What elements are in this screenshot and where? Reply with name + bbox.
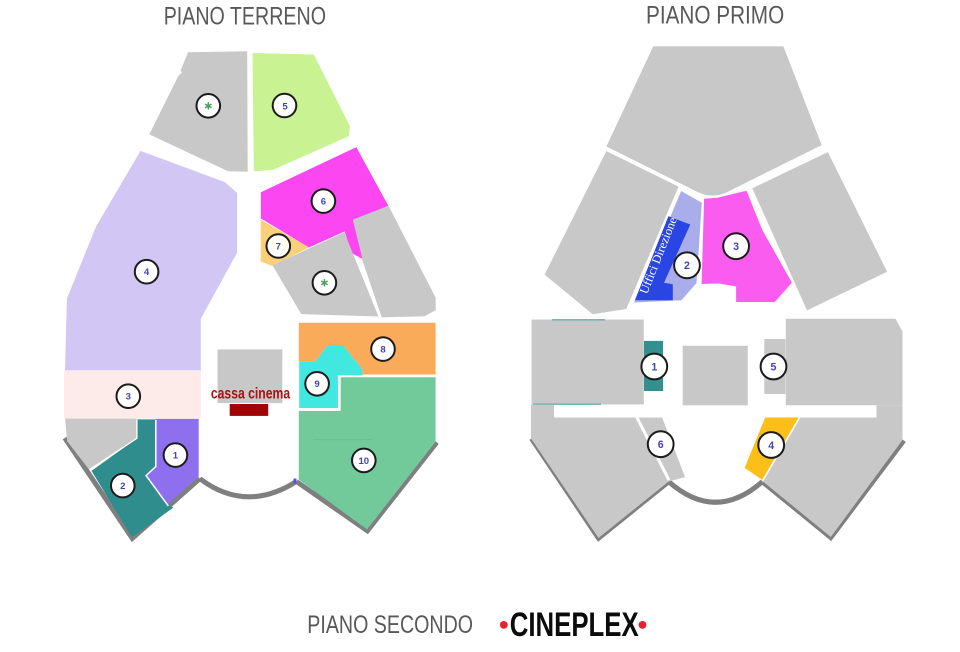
- svg-text:cassa cinema: cassa cinema: [211, 385, 290, 402]
- svg-text:3: 3: [733, 241, 739, 253]
- svg-text:10: 10: [358, 456, 369, 467]
- svg-text:1: 1: [651, 361, 657, 373]
- svg-text:5: 5: [282, 101, 288, 112]
- svg-text:5: 5: [771, 361, 777, 373]
- svg-text:CINEPLEX: CINEPLEX: [510, 606, 639, 644]
- svg-text:2: 2: [684, 260, 690, 272]
- svg-text:7: 7: [276, 241, 281, 252]
- svg-text:PIANO TERRENO: PIANO TERRENO: [164, 3, 326, 31]
- svg-text:8: 8: [380, 345, 386, 356]
- svg-text:2: 2: [120, 481, 125, 492]
- svg-text:4: 4: [144, 267, 150, 278]
- svg-text:9: 9: [314, 379, 319, 390]
- svg-text:6: 6: [658, 439, 664, 451]
- svg-text:1: 1: [173, 451, 179, 462]
- svg-text:4: 4: [768, 440, 774, 452]
- svg-text:3: 3: [126, 392, 131, 403]
- svg-text:6: 6: [321, 197, 326, 208]
- svg-text:PIANO PRIMO: PIANO PRIMO: [646, 2, 784, 30]
- svg-text:PIANO SECONDO: PIANO SECONDO: [307, 611, 473, 639]
